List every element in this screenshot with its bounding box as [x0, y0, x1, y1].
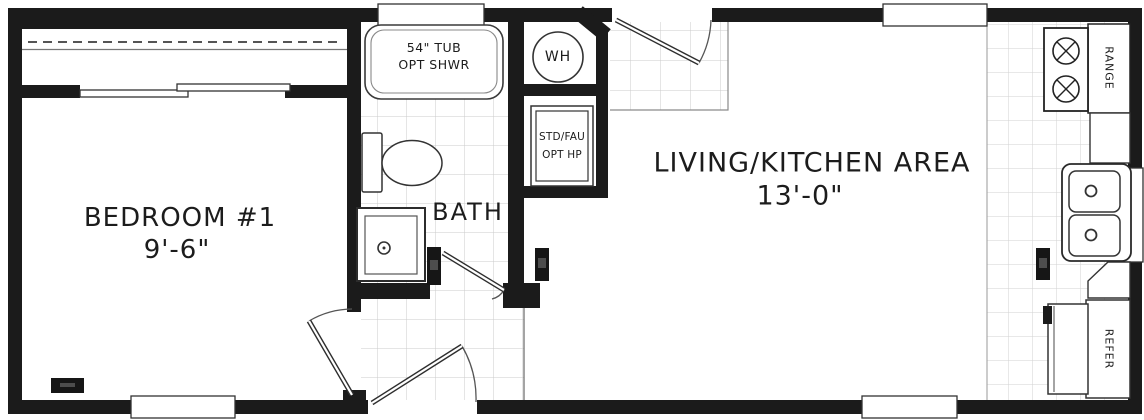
kitchen-double-sink: [1062, 164, 1131, 261]
entry-floor-tile: [610, 22, 728, 110]
window-bedroom: [131, 396, 235, 418]
floor-plan: BEDROOM #1 9'-6" BATH 54" TUB OPT SHWR W…: [0, 0, 1144, 420]
bedroom-name-label: BEDROOM #1: [84, 205, 276, 231]
floor-registers: [51, 247, 1050, 393]
bath-vanity-sink: [357, 208, 425, 281]
water-heater-label: WH: [545, 50, 571, 64]
range: [1044, 24, 1130, 113]
tub-label-line1: 54" TUB: [407, 42, 462, 55]
closet-sliding-door-left: [80, 90, 188, 97]
window-living-bottom: [862, 396, 957, 418]
window-above-tub: [378, 4, 484, 26]
refrigerator-label: REFER: [1104, 329, 1115, 370]
closet-sliding-door-right: [177, 84, 290, 91]
living-name-label: LIVING/KITCHEN AREA: [654, 150, 971, 177]
tub-label-line2: OPT SHWR: [398, 59, 469, 72]
bedroom-dim-label: 9'-6": [144, 237, 211, 263]
hall-floor-tile: [361, 299, 524, 400]
furnace-unit: [531, 106, 593, 186]
bath-label: BATH: [432, 200, 504, 224]
bedroom-door: [309, 309, 352, 395]
furnace-label-line1: STD/FAU: [539, 132, 585, 143]
window-living-top: [883, 4, 987, 26]
refrigerator-handle: [1043, 306, 1052, 324]
range-label: RANGE: [1104, 46, 1115, 89]
bedroom-closet: [22, 42, 347, 98]
refrigerator: [1043, 300, 1130, 398]
living-dim-label: 13'-0": [756, 183, 843, 210]
furnace-label-line2: OPT HP: [542, 150, 582, 161]
